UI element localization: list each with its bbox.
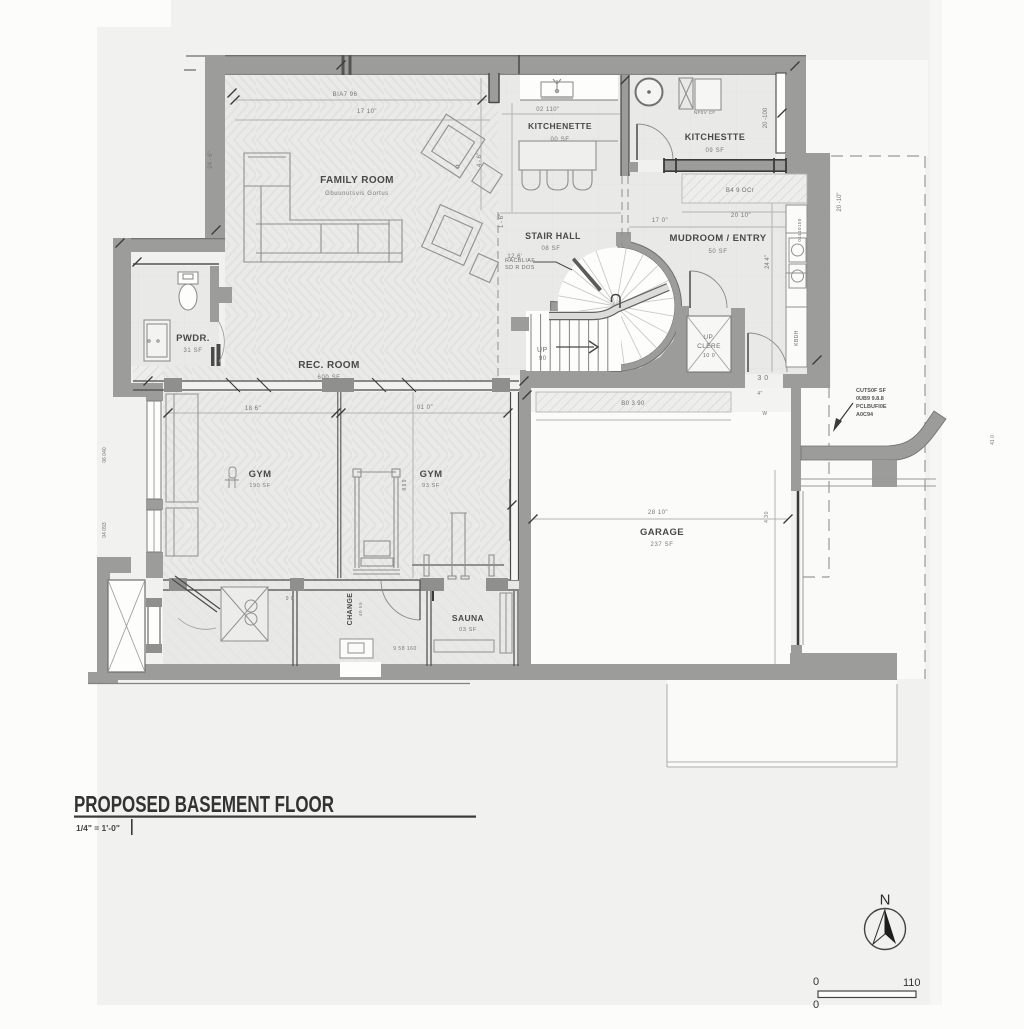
svg-text:50 SF: 50 SF bbox=[708, 249, 727, 255]
svg-text:0UB9 9.8.8: 0UB9 9.8.8 bbox=[856, 396, 884, 402]
svg-text:1 - 6": 1 - 6" bbox=[499, 214, 505, 228]
svg-text:4 30: 4 30 bbox=[764, 511, 770, 523]
svg-text:PROPOSED BASEMENT FLOOR: PROPOSED BASEMENT FLOOR bbox=[74, 791, 334, 817]
svg-text:B4 9 OCr: B4 9 OCr bbox=[726, 188, 754, 194]
svg-text:8 9 9: 8 9 9 bbox=[402, 479, 408, 490]
svg-text:STAIR HALL: STAIR HALL bbox=[525, 231, 581, 241]
svg-text:17 0": 17 0" bbox=[652, 218, 668, 224]
svg-text:10 0: 10 0 bbox=[703, 353, 715, 359]
svg-text:02 110": 02 110" bbox=[536, 107, 560, 113]
svg-text:17 10": 17 10" bbox=[357, 109, 377, 115]
svg-text:GYM: GYM bbox=[420, 469, 443, 480]
svg-text:4 - 6": 4 - 6" bbox=[477, 153, 483, 167]
svg-text:190 SF: 190 SF bbox=[249, 483, 270, 489]
svg-text:SD R DOS: SD R DOS bbox=[505, 265, 535, 271]
svg-text:00 SF: 00 SF bbox=[550, 137, 569, 143]
svg-text:KITCHENETTE: KITCHENETTE bbox=[528, 121, 592, 131]
svg-text:A0C94: A0C94 bbox=[856, 412, 874, 418]
svg-text:PCLBUFI0E: PCLBUFI0E bbox=[856, 404, 887, 410]
svg-text:41 0: 41 0 bbox=[990, 435, 996, 445]
svg-text:GARAGE: GARAGE bbox=[640, 527, 684, 538]
svg-text:BIA7 96: BIA7 96 bbox=[333, 92, 358, 98]
svg-text:MUDROOM / ENTRY: MUDROOM / ENTRY bbox=[670, 233, 767, 244]
svg-text:90: 90 bbox=[539, 356, 547, 362]
svg-text:FAMILY ROOM: FAMILY ROOM bbox=[320, 175, 394, 186]
svg-text:20 -100: 20 -100 bbox=[763, 107, 769, 128]
svg-text:N: N bbox=[880, 892, 891, 909]
svg-text:1/4" = 1'-0": 1/4" = 1'-0" bbox=[76, 823, 120, 833]
svg-text:06 040: 06 040 bbox=[102, 447, 108, 463]
svg-text:UP.: UP. bbox=[703, 334, 714, 341]
svg-text:600 SF: 600 SF bbox=[318, 375, 341, 381]
svg-text:CUTS0F SF: CUTS0F SF bbox=[856, 388, 887, 394]
svg-text:0: 0 bbox=[813, 976, 819, 988]
svg-text:0: 0 bbox=[813, 999, 819, 1011]
svg-text:31 SF: 31 SF bbox=[183, 348, 202, 354]
svg-text:W: W bbox=[762, 411, 767, 417]
svg-text:Gbuunutsvis Gortus: Gbuunutsvis Gortus bbox=[325, 191, 389, 197]
svg-text:REC. ROOM: REC. ROOM bbox=[298, 360, 359, 371]
svg-text:24 - 6": 24 - 6" bbox=[208, 151, 214, 168]
svg-text:3 0: 3 0 bbox=[757, 375, 768, 382]
svg-text:9 0: 9 0 bbox=[286, 596, 294, 602]
svg-text:SAUNA: SAUNA bbox=[452, 613, 484, 623]
svg-text:18 6": 18 6" bbox=[245, 406, 261, 412]
svg-text:GYM: GYM bbox=[249, 469, 272, 480]
svg-text:CHANGE: CHANGE bbox=[347, 593, 354, 626]
svg-text:24 4": 24 4" bbox=[765, 255, 771, 269]
svg-text:20 10": 20 10" bbox=[731, 213, 751, 219]
svg-text:237 SF: 237 SF bbox=[651, 542, 674, 548]
svg-text:01 0": 01 0" bbox=[417, 405, 433, 411]
svg-text:03 SF: 03 SF bbox=[459, 627, 477, 633]
svg-text:NF0V CF: NF0V CF bbox=[694, 110, 716, 115]
svg-text:9 58 160: 9 58 160 bbox=[393, 646, 416, 652]
svg-text:93 SF: 93 SF bbox=[422, 483, 440, 489]
svg-text:KITCHESTTE: KITCHESTTE bbox=[685, 132, 746, 142]
svg-text:08 SF: 08 SF bbox=[541, 246, 560, 252]
svg-text:20 -10": 20 -10" bbox=[837, 192, 843, 211]
svg-text:B0 3 90: B0 3 90 bbox=[621, 401, 645, 407]
svg-text:4": 4" bbox=[757, 391, 763, 397]
svg-text:04 093: 04 093 bbox=[102, 522, 108, 538]
svg-text:UP: UP bbox=[537, 347, 548, 354]
svg-text:28 10": 28 10" bbox=[648, 510, 668, 516]
svg-text:09 SF: 09 SF bbox=[705, 148, 724, 154]
svg-text:CLERE: CLERE bbox=[697, 343, 721, 350]
svg-text:01410150: 01410150 bbox=[797, 218, 802, 241]
svg-text:PWDR.: PWDR. bbox=[176, 333, 210, 344]
svg-text:KBDH: KBDH bbox=[794, 330, 800, 346]
svg-text:110: 110 bbox=[903, 977, 921, 989]
svg-text:12.6': 12.6' bbox=[507, 254, 522, 260]
svg-text:40 59: 40 59 bbox=[358, 602, 363, 616]
